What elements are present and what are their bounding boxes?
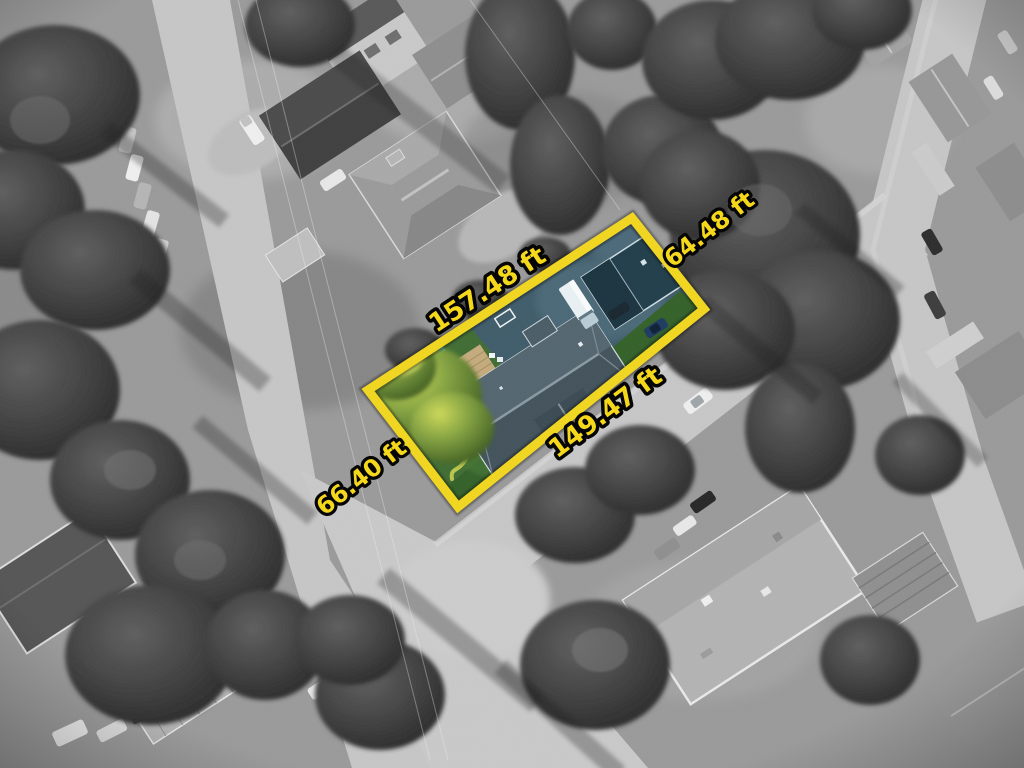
aerial-lot-photo: 157.48 ft 64.48 ft 149.47 ft 66.40 ft [0,0,1024,768]
aerial-photo-canvas: 157.48 ft 64.48 ft 149.47 ft 66.40 ft [0,0,1024,768]
vignette-overlay [0,0,1024,768]
